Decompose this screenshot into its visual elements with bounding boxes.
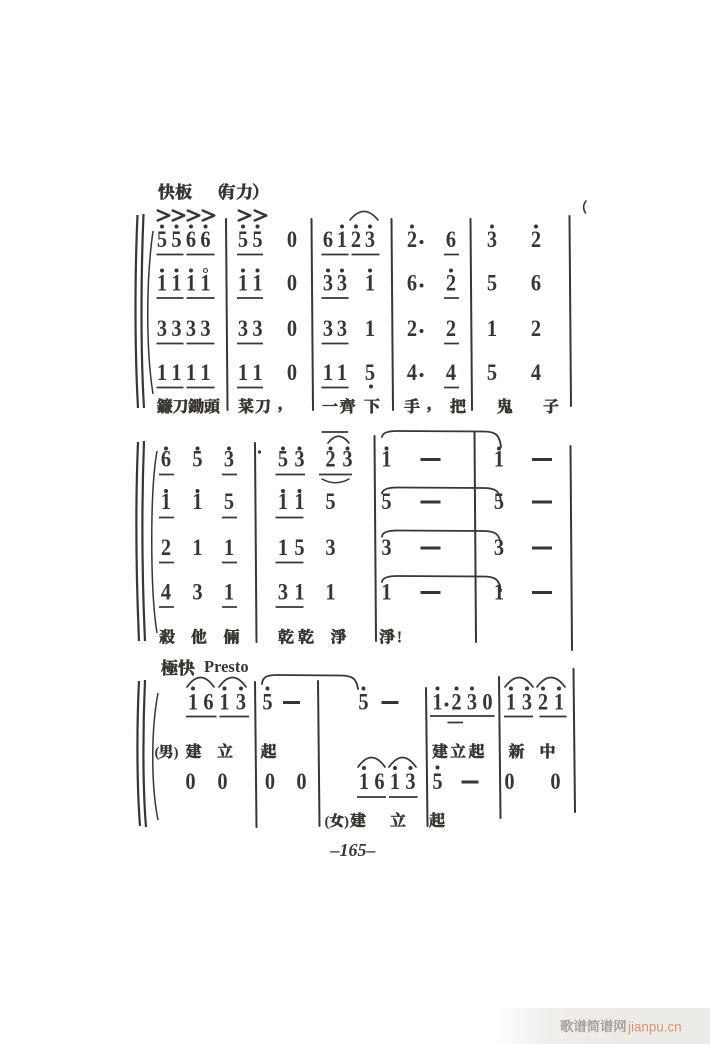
svg-text:3: 3 xyxy=(337,316,347,342)
svg-text:3: 3 xyxy=(171,316,181,342)
svg-text:6: 6 xyxy=(203,690,213,716)
svg-text:6: 6 xyxy=(446,227,456,253)
svg-text:1: 1 xyxy=(554,690,564,716)
svg-text:6: 6 xyxy=(186,227,196,253)
svg-text:2: 2 xyxy=(351,227,361,253)
svg-text:1: 1 xyxy=(224,535,234,561)
svg-text:0: 0 xyxy=(217,769,227,795)
svg-text:5: 5 xyxy=(171,227,181,253)
svg-text:1: 1 xyxy=(323,360,333,386)
svg-text:1: 1 xyxy=(171,360,181,386)
svg-text:Presto: Presto xyxy=(204,657,249,676)
svg-text:3: 3 xyxy=(325,535,335,561)
svg-text:1: 1 xyxy=(294,580,304,606)
svg-text:6: 6 xyxy=(531,271,541,297)
svg-text:2: 2 xyxy=(407,316,417,342)
svg-text:1: 1 xyxy=(200,360,210,386)
svg-text:–165–: –165– xyxy=(330,840,376,860)
svg-text:3: 3 xyxy=(323,316,333,342)
svg-text:1: 1 xyxy=(171,271,181,297)
svg-text:4: 4 xyxy=(161,580,171,606)
svg-text:1: 1 xyxy=(487,316,497,342)
svg-text:0: 0 xyxy=(287,227,297,253)
svg-text:5: 5 xyxy=(325,489,335,515)
svg-text:5: 5 xyxy=(487,271,497,297)
svg-text:(: ( xyxy=(325,814,330,830)
svg-text:2: 2 xyxy=(531,316,541,342)
svg-text:3: 3 xyxy=(467,690,477,716)
svg-text:jianpu.cn: jianpu.cn xyxy=(627,1020,682,1035)
svg-text:): ) xyxy=(174,745,179,761)
svg-text:3: 3 xyxy=(252,316,262,342)
svg-text:5: 5 xyxy=(238,227,248,253)
svg-text:4: 4 xyxy=(531,360,541,386)
svg-text:0: 0 xyxy=(504,769,514,795)
svg-text:0: 0 xyxy=(287,360,297,386)
svg-text:1: 1 xyxy=(192,535,202,561)
svg-text:0: 0 xyxy=(185,769,195,795)
svg-text:1: 1 xyxy=(381,580,391,606)
svg-text:3: 3 xyxy=(337,271,347,297)
svg-text:1: 1 xyxy=(238,360,248,386)
svg-text:1: 1 xyxy=(186,271,196,297)
svg-text:3: 3 xyxy=(200,316,210,342)
svg-text:0: 0 xyxy=(287,316,297,342)
svg-text:6: 6 xyxy=(407,271,417,297)
svg-text:1: 1 xyxy=(365,316,375,342)
svg-text:3: 3 xyxy=(192,580,202,606)
svg-text:5: 5 xyxy=(262,690,272,716)
svg-text:0: 0 xyxy=(482,690,492,716)
svg-text:(: ( xyxy=(155,745,160,761)
svg-text:2: 2 xyxy=(407,227,417,253)
svg-text:5: 5 xyxy=(432,769,442,795)
svg-text:3: 3 xyxy=(157,316,167,342)
svg-text:2: 2 xyxy=(538,690,548,716)
svg-text:3: 3 xyxy=(522,690,532,716)
svg-text:): ) xyxy=(344,814,349,830)
svg-text:3: 3 xyxy=(238,316,248,342)
svg-text:1: 1 xyxy=(186,360,196,386)
svg-text:6: 6 xyxy=(374,769,384,795)
svg-text:1: 1 xyxy=(200,271,210,297)
svg-text:4: 4 xyxy=(446,360,456,386)
svg-text:3: 3 xyxy=(278,580,288,606)
svg-text:5: 5 xyxy=(487,360,497,386)
svg-text:1: 1 xyxy=(252,271,262,297)
svg-text:4: 4 xyxy=(407,360,417,386)
svg-text:3: 3 xyxy=(487,227,497,253)
svg-text:1: 1 xyxy=(506,690,516,716)
svg-text:1: 1 xyxy=(337,360,347,386)
svg-text:1: 1 xyxy=(337,227,347,253)
svg-text:0: 0 xyxy=(296,769,306,795)
svg-text:3: 3 xyxy=(186,316,196,342)
svg-text:2: 2 xyxy=(161,535,171,561)
svg-text:1: 1 xyxy=(224,580,234,606)
svg-text:3: 3 xyxy=(236,690,246,716)
svg-text:1: 1 xyxy=(278,535,288,561)
svg-text:6: 6 xyxy=(200,227,210,253)
svg-text:1: 1 xyxy=(390,769,400,795)
svg-text:5: 5 xyxy=(294,535,304,561)
svg-text:1: 1 xyxy=(432,690,442,716)
svg-text:2: 2 xyxy=(451,690,461,716)
svg-text:3: 3 xyxy=(323,271,333,297)
svg-text:5: 5 xyxy=(365,360,375,386)
svg-text:5: 5 xyxy=(252,227,262,253)
svg-text:2: 2 xyxy=(446,271,456,297)
svg-text:1: 1 xyxy=(365,271,375,297)
svg-text:5: 5 xyxy=(494,489,504,515)
svg-text:3: 3 xyxy=(494,535,504,561)
svg-text:3: 3 xyxy=(381,535,391,561)
svg-text:2: 2 xyxy=(446,316,456,342)
svg-text:6: 6 xyxy=(323,227,333,253)
svg-text:1: 1 xyxy=(494,580,504,606)
svg-text:0: 0 xyxy=(265,769,275,795)
svg-text:1: 1 xyxy=(252,360,262,386)
svg-text:2: 2 xyxy=(531,227,541,253)
svg-text:0: 0 xyxy=(287,271,297,297)
svg-text:3: 3 xyxy=(405,769,415,795)
svg-text:1: 1 xyxy=(188,690,198,716)
svg-text:3: 3 xyxy=(365,227,375,253)
svg-text:1: 1 xyxy=(157,271,167,297)
svg-text:5: 5 xyxy=(224,489,234,515)
svg-text:!: ! xyxy=(397,628,403,647)
svg-text:1: 1 xyxy=(219,690,229,716)
svg-text:5: 5 xyxy=(157,227,167,253)
svg-text:1: 1 xyxy=(359,769,369,795)
svg-text:0: 0 xyxy=(550,769,560,795)
svg-text:1: 1 xyxy=(238,271,248,297)
svg-text:1: 1 xyxy=(325,580,335,606)
svg-text:5: 5 xyxy=(358,690,368,716)
svg-text:1: 1 xyxy=(157,360,167,386)
